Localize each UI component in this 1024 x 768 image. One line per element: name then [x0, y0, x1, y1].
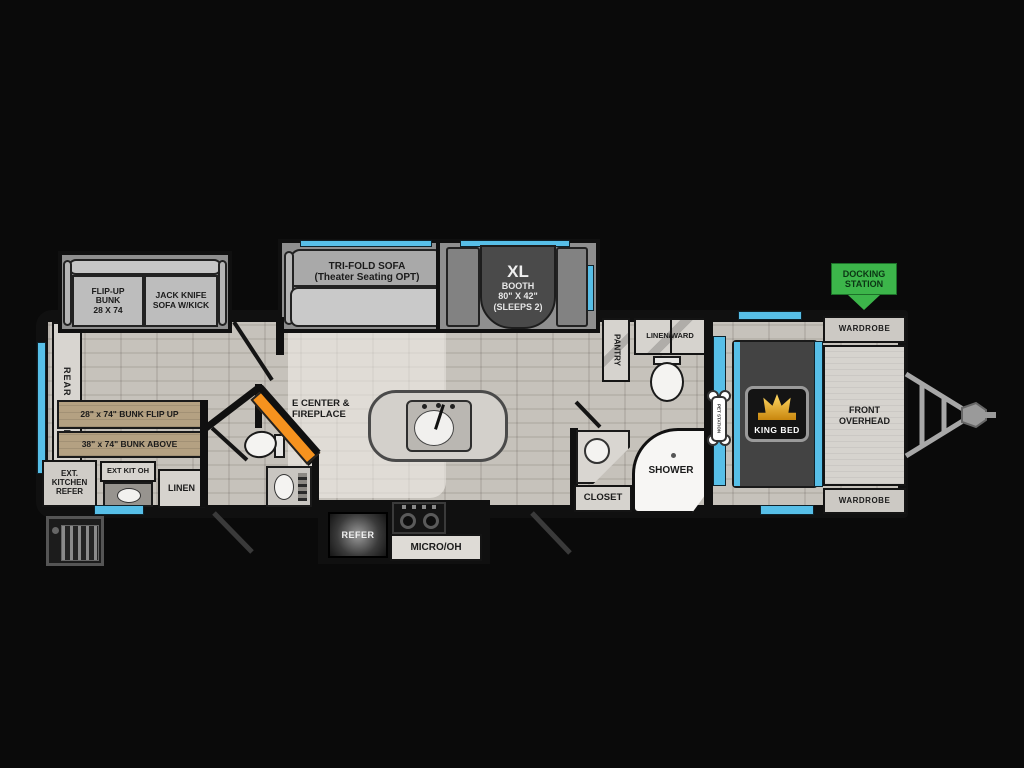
- midbath-door-swing: [212, 428, 247, 460]
- midbath-diagonal-wall: [206, 389, 257, 428]
- ecenter-diagonal-wall: [260, 387, 318, 453]
- hitch-frame: [906, 374, 966, 456]
- rv-floorplan-diagram: REAR OVERHEAD FLIP-UP BUNK 28 X 74 JACK …: [0, 0, 1024, 768]
- lines-overlay: [0, 0, 1024, 768]
- rear-entry-door-swing: [214, 513, 252, 552]
- bath-door-swing: [576, 402, 600, 427]
- hitch-coupler: [962, 403, 986, 427]
- bunkroom-wall-stub: [276, 317, 284, 355]
- main-entry-door-swing: [532, 513, 570, 553]
- bunkroom-door-swing: [234, 322, 272, 380]
